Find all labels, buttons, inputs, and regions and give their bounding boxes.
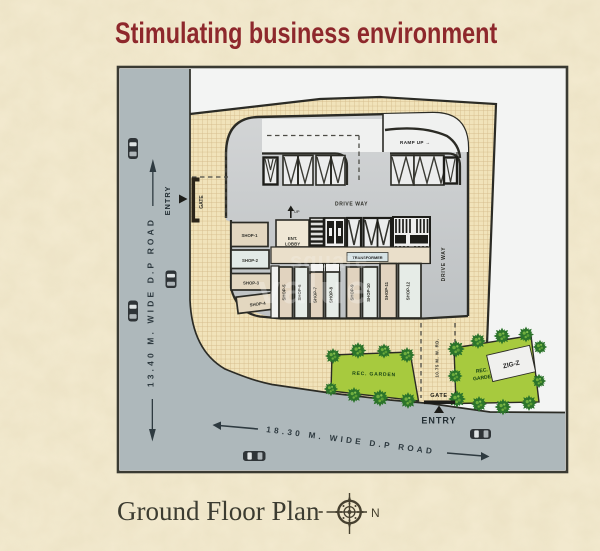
svg-text:DRIVE WAY: DRIVE WAY — [335, 202, 368, 208]
svg-text:LOBBY: LOBBY — [285, 242, 300, 247]
svg-text:ENTRY: ENTRY — [421, 416, 456, 426]
svg-text:SHOP-2: SHOP-2 — [242, 258, 259, 263]
svg-text:DRIVE WAY: DRIVE WAY — [441, 247, 447, 282]
svg-text:ENT.: ENT. — [288, 236, 298, 241]
svg-text:SHOP-1: SHOP-1 — [242, 233, 259, 238]
svg-text:SHOP-11: SHOP-11 — [384, 281, 389, 300]
svg-text:GATE: GATE — [199, 195, 205, 209]
svg-text:SHOP-12: SHOP-12 — [406, 281, 411, 300]
svg-text:RAMP UP →: RAMP UP → — [400, 140, 431, 145]
svg-text:square: square — [290, 248, 368, 273]
svg-text:N: N — [371, 506, 380, 520]
svg-text:13.40 M. WIDE D.P ROAD: 13.40 M. WIDE D.P ROAD — [146, 217, 156, 387]
svg-text:ENTRY: ENTRY — [163, 186, 172, 216]
svg-text:value: value — [258, 268, 370, 312]
svg-text:10.75 M. W. RD.: 10.75 M. W. RD. — [435, 338, 440, 377]
svg-text:UP: UP — [294, 209, 300, 214]
svg-text:GATE: GATE — [430, 393, 448, 399]
